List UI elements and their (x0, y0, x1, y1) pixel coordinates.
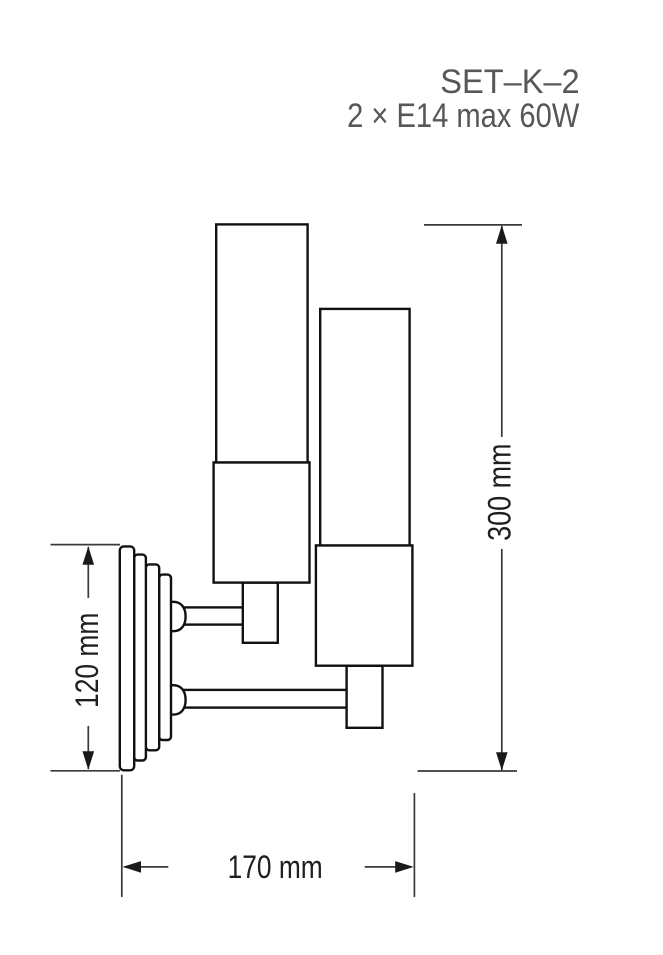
svg-text:300 mm: 300 mm (482, 444, 518, 541)
svg-text:2 × E14 max 60W: 2 × E14 max 60W (347, 97, 579, 135)
svg-text:SET–K–2: SET–K–2 (440, 63, 579, 101)
svg-text:170 mm: 170 mm (228, 849, 323, 885)
svg-text:120 mm: 120 mm (69, 613, 105, 708)
